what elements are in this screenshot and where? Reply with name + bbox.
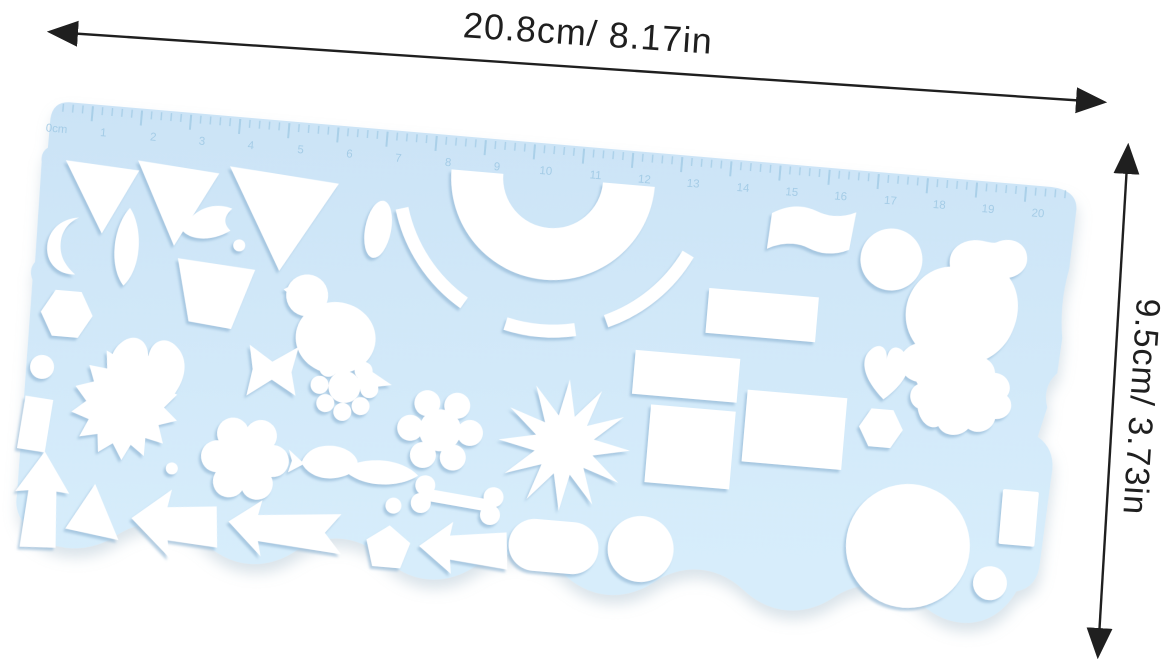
rectangle-medium-cutout [632,350,740,403]
svg-text:6: 6 [346,148,353,161]
svg-text:8: 8 [444,157,451,170]
svg-text:11: 11 [589,169,602,182]
scene-graphic: 0cm 1 2 3 4 5 6 7 8 9 10 11 12 13 14 15 … [0,0,1176,671]
stencil-template: 0cm 1 2 3 4 5 6 7 8 9 10 11 12 13 14 15 … [7,100,1078,634]
square-large-cutout [742,390,848,470]
svg-text:13: 13 [686,178,700,191]
svg-text:14: 14 [736,182,750,195]
svg-text:15: 15 [785,186,799,199]
svg-text:3: 3 [198,136,205,149]
product-photo: 0cm 1 2 3 4 5 6 7 8 9 10 11 12 13 14 15 … [0,0,1176,671]
svg-text:10: 10 [539,165,553,178]
svg-text:19: 19 [981,203,995,216]
rectangle-wide-cutout [705,288,818,342]
svg-text:20: 20 [1031,207,1045,220]
svg-text:9: 9 [493,161,500,174]
svg-text:1: 1 [100,127,107,140]
svg-text:2: 2 [149,131,156,144]
svg-text:18: 18 [932,199,946,212]
svg-text:12: 12 [637,173,651,186]
square-medium-cutout [644,404,735,489]
svg-text:16: 16 [834,190,848,203]
svg-text:7: 7 [395,152,402,165]
svg-text:17: 17 [884,195,898,208]
ruler-zero-label: 0cm [45,122,68,136]
svg-text:5: 5 [297,144,304,157]
rectangle-vertical-small-cutout [998,489,1039,547]
